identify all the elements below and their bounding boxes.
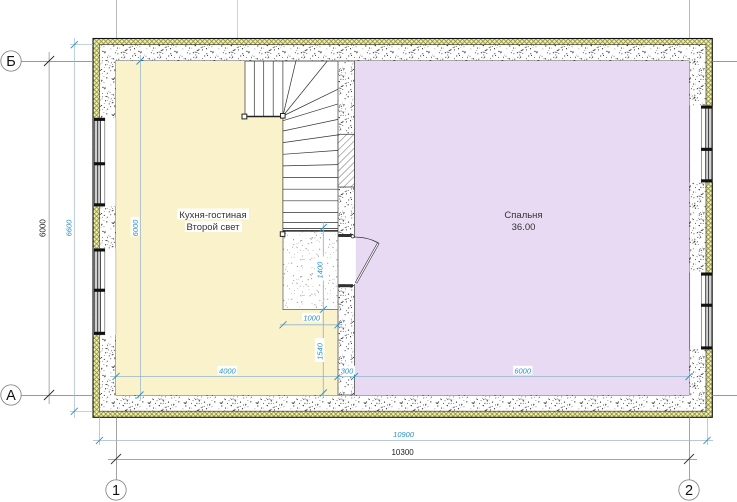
svg-text:1400: 1400 bbox=[315, 261, 324, 279]
svg-text:А: А bbox=[6, 388, 16, 404]
svg-text:4000: 4000 bbox=[219, 366, 237, 375]
svg-text:10900: 10900 bbox=[393, 430, 415, 439]
svg-text:Спальня: Спальня bbox=[504, 210, 542, 221]
svg-text:Второй свет: Второй свет bbox=[186, 222, 240, 233]
svg-text:1: 1 bbox=[112, 483, 120, 499]
svg-text:6000: 6000 bbox=[514, 366, 532, 375]
svg-text:10300: 10300 bbox=[391, 448, 414, 457]
svg-text:Кухня-гостиная: Кухня-гостиная bbox=[179, 210, 246, 221]
svg-text:300: 300 bbox=[341, 366, 354, 375]
svg-text:6000: 6000 bbox=[131, 219, 140, 237]
svg-text:1540: 1540 bbox=[315, 342, 324, 360]
svg-text:2: 2 bbox=[685, 483, 693, 499]
svg-text:Б: Б bbox=[6, 54, 16, 70]
svg-text:36.00: 36.00 bbox=[512, 222, 536, 233]
svg-text:6000: 6000 bbox=[39, 219, 48, 237]
svg-text:6600: 6600 bbox=[64, 219, 73, 237]
svg-text:1000: 1000 bbox=[303, 313, 321, 322]
